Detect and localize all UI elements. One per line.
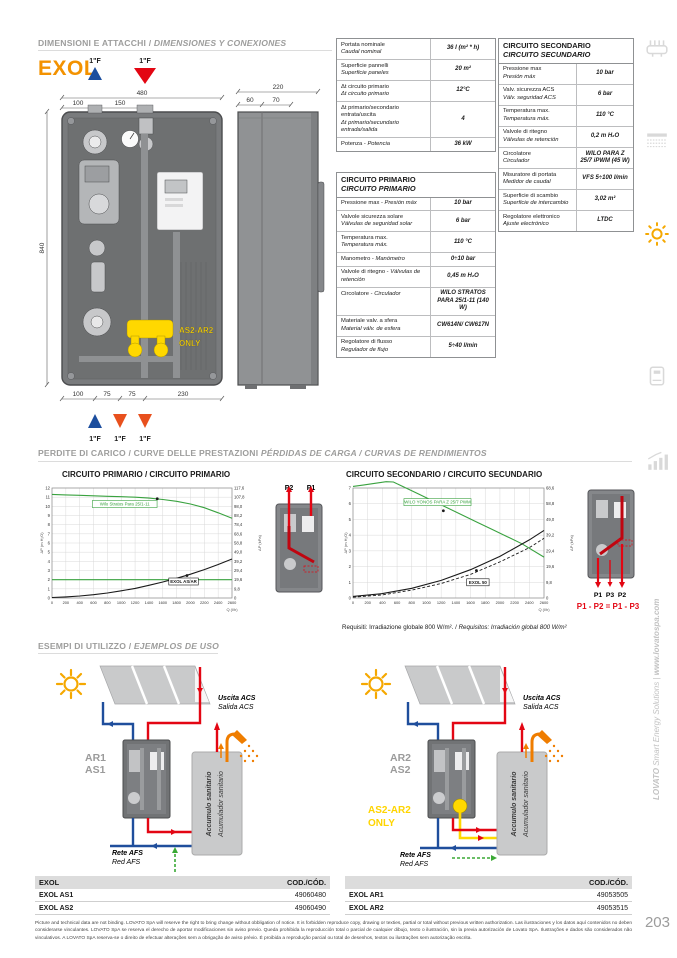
dim-front-height: 840 (39, 242, 46, 253)
tank-label-it: Accumulo sanitario (511, 771, 518, 838)
dim-bottom-1: 100 (73, 391, 84, 398)
svg-text:2: 2 (349, 564, 352, 569)
spec-row: Valv. sicurezza ACSVálv. seguridad ACS6 … (499, 85, 633, 106)
acs-out-label-it: Uscita ACS (218, 695, 256, 702)
svg-text:2200: 2200 (510, 600, 519, 605)
dim-bottom-3: 75 (128, 391, 136, 398)
svg-text:2000: 2000 (186, 600, 195, 605)
dim-bottom-4: 230 (178, 391, 189, 398)
solar-panel (405, 666, 515, 704)
yellow-valve (453, 799, 467, 813)
p2-label: P2 (618, 592, 627, 599)
storage-tank (192, 752, 242, 855)
svg-text:1200: 1200 (437, 600, 446, 605)
spec-row: Portata nominaleCaudal nominal36 l (m² *… (337, 39, 495, 60)
code-row: EXOL AS249060490 (35, 902, 330, 915)
spec-row: Regolatore di flussoRegulador de flujo5÷… (337, 337, 495, 357)
unit-label-as1: AS1 (85, 764, 106, 776)
general-spec-table: Portata nominaleCaudal nominal36 l (m² *… (336, 38, 496, 152)
svg-text:ΔP (kPa): ΔP (kPa) (257, 534, 262, 551)
svg-text:4: 4 (349, 533, 352, 538)
svg-text:9,8: 9,8 (234, 586, 240, 591)
svg-text:5: 5 (48, 550, 51, 555)
spec-row: Temperatura max.Temperatura máx.110 °C (337, 232, 495, 253)
port-label: 1"F (114, 436, 126, 443)
svg-text:1400: 1400 (145, 600, 154, 605)
note-only: ONLY (368, 818, 395, 829)
spec-row: Valvole di ritegno - Válvulas de retenci… (337, 267, 495, 288)
side-panel (238, 112, 318, 385)
svg-text:5: 5 (349, 517, 352, 522)
code-row: EXOL AR149053505 (345, 889, 632, 902)
boiler-unit-icon (645, 364, 669, 388)
svg-text:Wilo Stratos Para 25/1-11: Wilo Stratos Para 25/1-11 (100, 502, 151, 507)
svg-text:9,8: 9,8 (546, 580, 552, 585)
cold-port-triangle-icon (88, 414, 102, 428)
svg-text:2: 2 (48, 577, 51, 582)
svg-text:98,0: 98,0 (234, 504, 243, 509)
chart1-title: CIRCUITO PRIMARIO / CIRCUITO PRIMARIO (62, 470, 230, 479)
svg-text:19,6: 19,6 (546, 564, 555, 569)
note-only: ONLY (179, 339, 201, 348)
solar-panel (100, 666, 210, 704)
spec-row: Δt circuito primarioΔt circuito primario… (337, 81, 495, 102)
svg-text:2400: 2400 (525, 600, 534, 605)
section-usage-title: ESEMPI DI UTILIZZO / EJEMPLOS DE USO (38, 641, 219, 651)
dim-side-width: 220 (273, 84, 284, 91)
port-label: 1"F (89, 58, 101, 65)
cold-port-triangle-icon (88, 67, 102, 80)
section-dimensions-title-es: DIMENSIONES Y CONEXIONES (154, 38, 286, 48)
manifold-icon (645, 36, 669, 60)
sidebar-vertical-text: LOVATO Smart Energy Solutions | www.lova… (652, 495, 661, 800)
spec-row: Potenza - Potencia36 kW (337, 138, 495, 151)
unit-label-as2: AS2 (390, 764, 411, 776)
acs-out-label-it: Uscita ACS (523, 695, 561, 702)
svg-text:WILO YONOS PARA Z 25/7 PWM: WILO YONOS PARA Z 25/7 PWM (404, 500, 471, 505)
acs-out-label-es: Salida ACS (218, 704, 254, 711)
svg-text:58,8: 58,8 (234, 541, 243, 546)
pressure-equation: P1 - P2 = P1 - P3 (560, 602, 656, 611)
secondary-circuit-table: CIRCUITO SECONDARIOCIRCUITO SECUNDARIOPr… (498, 38, 634, 232)
svg-text:29,4: 29,4 (234, 568, 243, 573)
svg-text:1400: 1400 (452, 600, 461, 605)
page-number: 203 (634, 914, 670, 931)
acs-out-label-es: Salida ACS (523, 704, 559, 711)
svg-text:19,6: 19,6 (234, 577, 243, 582)
svg-text:0: 0 (352, 600, 355, 605)
svg-text:2600: 2600 (228, 600, 237, 605)
svg-text:EXOL 50: EXOL 50 (469, 580, 488, 585)
chart2-title: CIRCUITO SECONDARIO / CIRCUITO SECUNDARI… (346, 470, 542, 479)
svg-text:2400: 2400 (214, 600, 223, 605)
afs-label-es: Red AFS (112, 859, 140, 866)
svg-text:11: 11 (46, 495, 51, 500)
divider (38, 50, 332, 51)
hot-port-triangle-icon (113, 414, 127, 428)
svg-text:800: 800 (409, 600, 416, 605)
svg-text:12: 12 (45, 486, 50, 491)
divider (38, 653, 218, 654)
table-header: CIRCUITO SECONDARIOCIRCUITO SECUNDARIO (499, 39, 633, 64)
dim-front-b: 150 (115, 100, 126, 107)
svg-text:68,6: 68,6 (234, 531, 243, 536)
svg-text:800: 800 (104, 600, 111, 605)
tank-label-it: Accumulo sanitario (206, 771, 213, 838)
svg-text:58,8: 58,8 (546, 501, 555, 506)
sun-icon (57, 670, 85, 698)
spec-row: Regolatore elettronicoAjuste electrónico… (499, 211, 633, 231)
svg-text:2600: 2600 (540, 600, 549, 605)
spec-row: Superficie di scambioSuperficie de inter… (499, 190, 633, 211)
hot-pipe (148, 818, 192, 832)
p1-label: P1 (594, 592, 603, 599)
sun-icon (645, 222, 669, 246)
svg-text:0: 0 (546, 596, 549, 601)
svg-text:1200: 1200 (131, 600, 140, 605)
dim-side-b: 70 (272, 97, 280, 104)
primary-mini-diagram: P2 P1 (266, 482, 330, 606)
section-dimensions-title: DIMENSIONI E ATTACCHI / DIMENSIONES Y CO… (38, 38, 286, 48)
port-label: 1"F (89, 436, 101, 443)
port-label: 1"F (139, 58, 151, 65)
svg-text:78,4: 78,4 (234, 522, 243, 527)
spec-row: Pressione maxPresión máx10 bar (499, 64, 633, 85)
svg-text:400: 400 (76, 600, 83, 605)
svg-text:9: 9 (48, 513, 51, 518)
svg-text:EXOL AS/AR: EXOL AS/AR (170, 579, 197, 584)
svg-text:6: 6 (349, 501, 352, 506)
requirements-note-es: Requisitos: Irradiación global 800 W/m² (459, 624, 567, 631)
spec-row: Valvole sicurezza solareVálvulas de segu… (337, 211, 495, 232)
spec-row: Δt primario/secondario entrata/uscitaΔt … (337, 102, 495, 138)
spec-row: Valvole di ritegnoVálvulas de retención0… (499, 127, 633, 148)
svg-text:39,2: 39,2 (234, 559, 243, 564)
brand-website: www.lovatospa.com (652, 599, 661, 676)
brand-name: LOVATO (652, 768, 661, 800)
storage-tank (497, 752, 547, 855)
svg-text:1: 1 (349, 580, 352, 585)
svg-text:29,4: 29,4 (546, 548, 555, 553)
note-as2ar2: AS2-AR2 (368, 805, 411, 816)
code-table-header: EXOLCOD./CÓD. (35, 876, 330, 889)
unit-label-ar1: AR1 (85, 752, 106, 764)
usage-diagram-as1: AR1 AS1 Accumulo sanitario Acumulador sa… (35, 658, 335, 874)
table-header: CIRCUITO PRIMARIOCIRCUITO PRIMARIO (337, 173, 495, 198)
spec-row: Temperatura max.Temperatura máx.110 °C (499, 106, 633, 127)
svg-text:107,8: 107,8 (234, 495, 245, 500)
requirements-note-it: Requisiti: Irradiazione globale 800 W/m²… (342, 624, 459, 631)
svg-text:49,0: 49,0 (546, 517, 555, 522)
svg-text:200: 200 (63, 600, 70, 605)
primary-circuit-table: CIRCUITO PRIMARIOCIRCUITO PRIMARIOPressi… (336, 172, 496, 358)
brand-tagline: Smart Energy Solutions | (652, 675, 661, 768)
section-usage-title-es: EJEMPLOS DE USO (134, 641, 219, 651)
svg-text:Q (l/h): Q (l/h) (226, 607, 238, 612)
svg-text:Q (l/h): Q (l/h) (538, 607, 550, 612)
spec-row: Manometro - Manómetro0÷10 bar (337, 253, 495, 267)
dim-side-a: 60 (246, 97, 254, 104)
svg-text:2000: 2000 (496, 600, 505, 605)
svg-text:39,2: 39,2 (546, 533, 555, 538)
afs-label-es: Red AFS (400, 861, 428, 868)
afs-label-it: Rete AFS (112, 850, 143, 857)
svg-text:49,0: 49,0 (234, 550, 243, 555)
requirements-note: Requisiti: Irradiazione globale 800 W/m²… (342, 624, 567, 631)
hot-port-triangle-icon (134, 68, 156, 84)
secondary-mini-diagram: P1 P3 P2 (578, 482, 642, 600)
primary-circuit-chart: 0200400600800100012001400160018002000220… (38, 480, 264, 620)
dim-front-width: 480 (137, 90, 148, 97)
svg-text:600: 600 (394, 600, 401, 605)
technical-drawing: 1"F 1"F 480 100 150 840 (35, 52, 333, 448)
dim-bottom-2: 75 (103, 391, 111, 398)
svg-text:117,6: 117,6 (234, 486, 245, 491)
code-table-header: COD./CÓD. (345, 876, 632, 889)
unit-label-ar2: AR2 (390, 752, 411, 764)
svg-text:10: 10 (45, 504, 50, 509)
svg-text:7: 7 (349, 486, 352, 491)
svg-text:8: 8 (48, 522, 51, 527)
svg-text:600: 600 (90, 600, 97, 605)
section-curves-title: PERDITE DI CARICO / CURVE DELLE PRESTAZI… (38, 448, 487, 458)
code-table-ar: COD./CÓD.EXOL AR149053505EXOL AR24905351… (345, 876, 632, 915)
code-table-as: EXOLCOD./CÓD.EXOL AS149060480EXOL AS2490… (35, 876, 330, 915)
underfloor-heating-icon (645, 128, 669, 152)
sun-icon (362, 670, 390, 698)
section-dimensions-title-it: DIMENSIONI E ATTACCHI / (38, 38, 154, 48)
svg-text:1000: 1000 (422, 600, 431, 605)
secondary-circuit-chart: 0200400600800100012001400160018002000220… (342, 480, 576, 620)
svg-text:1800: 1800 (172, 600, 181, 605)
port-label: 1"F (139, 436, 151, 443)
svg-text:68,6: 68,6 (546, 486, 555, 491)
svg-text:6: 6 (48, 541, 51, 546)
spec-row: Circolatore - CirculadorWILO STRATOS PAR… (337, 288, 495, 316)
svg-text:1800: 1800 (481, 600, 490, 605)
svg-text:88,2: 88,2 (234, 513, 243, 518)
afs-label-it: Rete AFS (400, 852, 431, 859)
svg-text:1000: 1000 (117, 600, 126, 605)
section-usage-title-it: ESEMPI DI UTILIZZO / (38, 641, 134, 651)
spec-row: CircolatoreCirculadorWILO PARA Z 25/7 iP… (499, 148, 633, 169)
spec-row: Misuratore di portataMedidor de caudalVF… (499, 169, 633, 190)
svg-text:400: 400 (379, 600, 386, 605)
svg-text:1600: 1600 (158, 600, 167, 605)
cold-pipe (103, 702, 133, 740)
svg-text:2200: 2200 (200, 600, 209, 605)
svg-text:1: 1 (48, 586, 51, 591)
tank-label-es: Acumulador sanitario (218, 771, 225, 838)
svg-text:7: 7 (48, 531, 51, 536)
svg-text:3: 3 (48, 568, 51, 573)
svg-text:4: 4 (48, 559, 51, 564)
p3-label: P3 (606, 592, 615, 599)
tank-label-es: Acumulador sanitario (523, 771, 530, 838)
spec-row: Materiale valv. a sferaMaterial válv. de… (337, 316, 495, 337)
svg-text:0: 0 (234, 596, 237, 601)
legal-text: Picture and technical data are not bindi… (35, 920, 632, 942)
svg-text:0: 0 (51, 600, 54, 605)
chart-icon (645, 448, 669, 472)
section-curves-title-it: PERDITE DI CARICO / CURVE DELLE PRESTAZI… (38, 448, 261, 458)
code-row: EXOL AS149060480 (35, 889, 330, 902)
cold-pipe (408, 702, 438, 740)
divider (38, 461, 632, 462)
usage-diagram-as2: AR2 AS2 AS2-AR2 ONLY Accumulo sanitario … (340, 658, 640, 874)
svg-text:1600: 1600 (466, 600, 475, 605)
code-row: EXOL AR249053515 (345, 902, 632, 915)
catalog-page: DIMENSIONI E ATTACCHI / DIMENSIONES Y CO… (0, 0, 677, 958)
svg-text:ΔP (m H₂O): ΔP (m H₂O) (39, 532, 44, 554)
spec-row: Superficie pannelliSuperficie paneles20 … (337, 60, 495, 81)
svg-text:200: 200 (364, 600, 371, 605)
dim-front-a: 100 (73, 100, 84, 107)
note-as2ar2: AS2-AR2 (179, 326, 214, 335)
spec-row: Pressione max - Presión máx10 bar (337, 198, 495, 212)
svg-text:ΔP (m H₂O): ΔP (m H₂O) (343, 532, 348, 554)
svg-text:ΔP (kPa): ΔP (kPa) (569, 534, 574, 551)
section-curves-title-es: PÉRDIDAS DE CARGA / CURVAS DE RENDIMIENT… (261, 448, 487, 458)
svg-text:3: 3 (349, 548, 352, 553)
hot-port-triangle-icon (138, 414, 152, 428)
